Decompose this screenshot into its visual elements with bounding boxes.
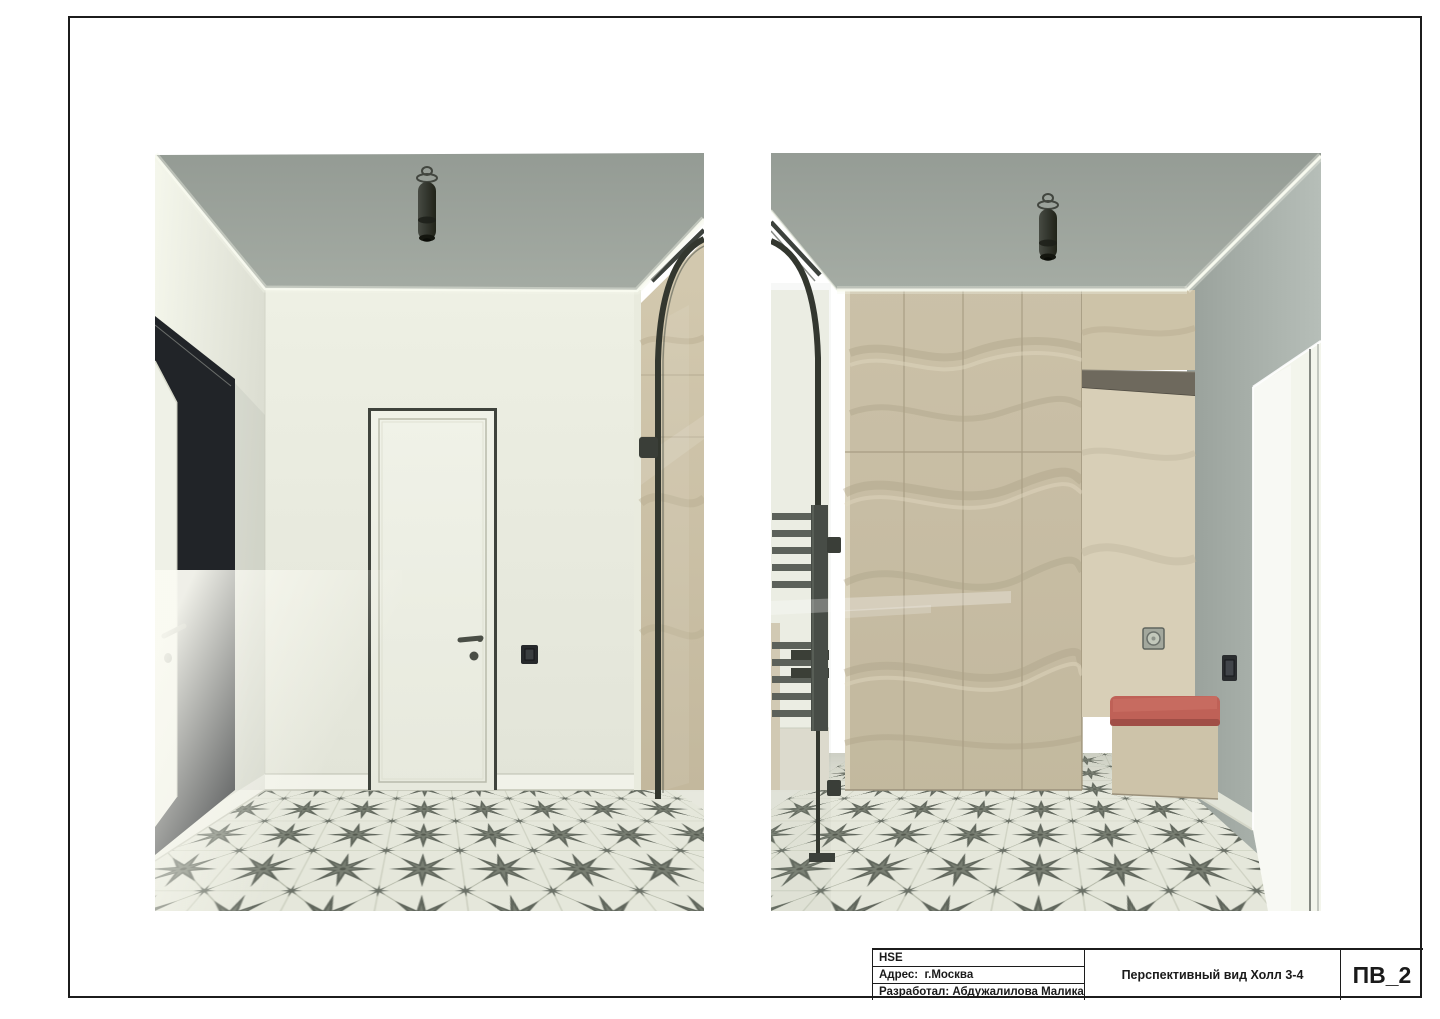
developer-row: Разработал: Абдужалилова Малика: [873, 984, 1084, 1000]
power-socket: [1143, 628, 1164, 649]
perspective-view-hall-3: [155, 153, 704, 911]
address-row: Адрес: г.Москва: [873, 967, 1084, 984]
title-block-info: HSE Адрес: г.Москва Разработал: Абдужали…: [873, 950, 1084, 1000]
wardrobe-upper-cabinet: [1082, 290, 1195, 396]
title-block: HSE Адрес: г.Москва Разработал: Абдужали…: [872, 948, 1423, 1000]
light-switch: [521, 645, 538, 664]
partition-bracket: [827, 537, 841, 553]
interior-door: [368, 408, 497, 790]
glass-door-stile: [811, 505, 828, 731]
wardrobe: [845, 290, 1082, 790]
bench: [1110, 696, 1220, 799]
drawing-title: Перспективный вид Холл 3-4: [1084, 950, 1340, 1000]
entrance-portal: [155, 316, 235, 855]
org-name: HSE: [873, 950, 1084, 967]
wardrobe-niche: [1082, 388, 1195, 717]
doorway-opening: [1253, 341, 1321, 911]
sheet-code: ПВ_2: [1340, 950, 1423, 1000]
partition-handle: [639, 437, 658, 458]
door-lock-knob: [470, 652, 479, 661]
partition-bracket: [827, 780, 841, 796]
drawing-sheet: HSE Адрес: г.Москва Разработал: Абдужали…: [0, 0, 1440, 1019]
entrance-door: [155, 361, 177, 827]
perspective-view-hall-4: [771, 153, 1321, 911]
glass-partition: [634, 230, 704, 799]
